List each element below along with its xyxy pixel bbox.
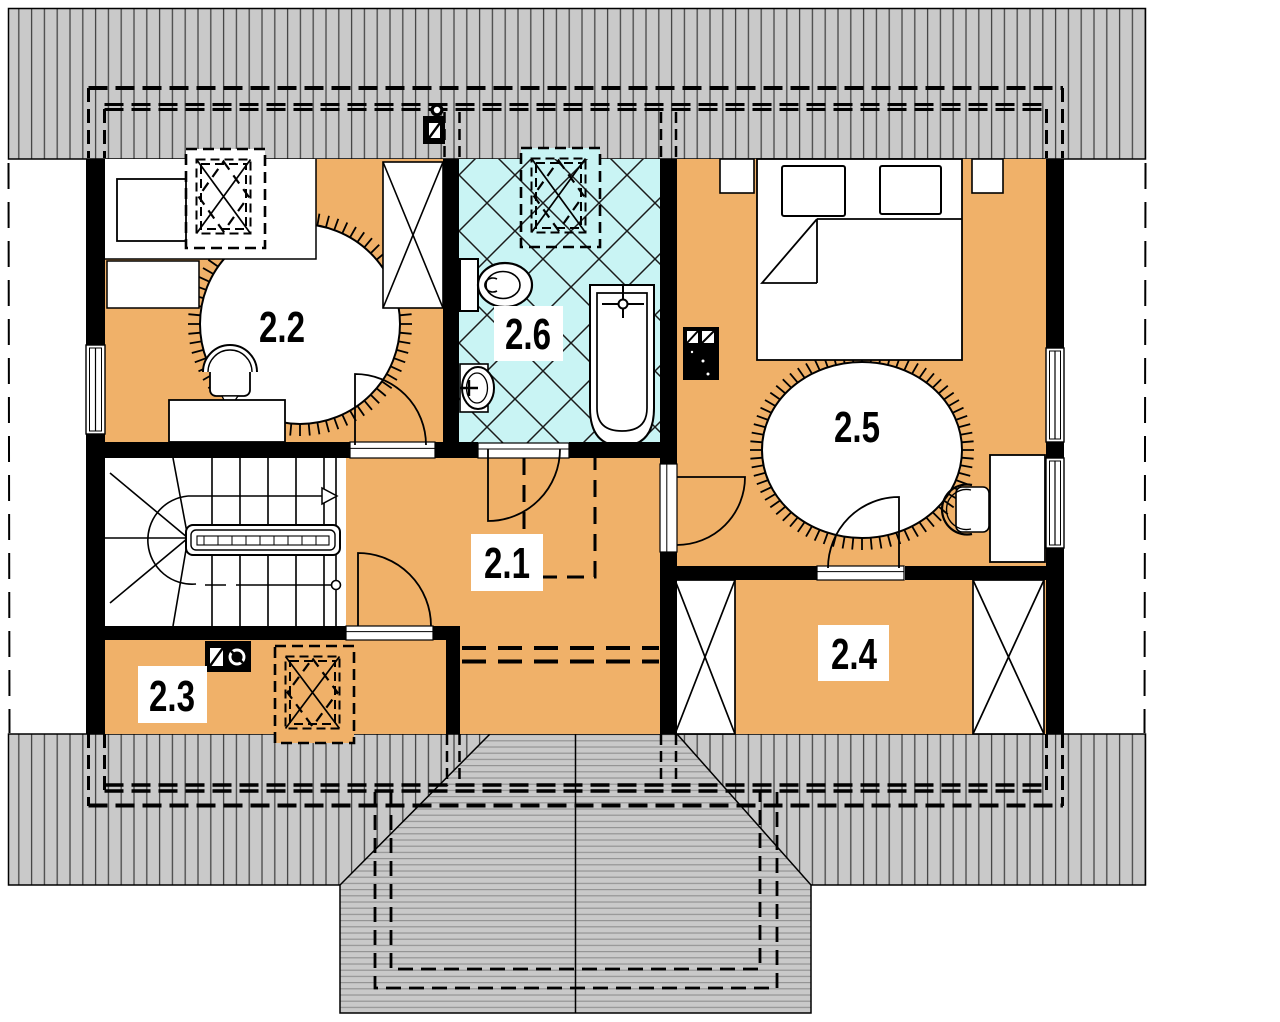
svg-text:2.1: 2.1 <box>484 539 530 588</box>
svg-text:2.4: 2.4 <box>831 630 877 679</box>
svg-text:2.2: 2.2 <box>259 303 305 352</box>
svg-text:2.5: 2.5 <box>834 403 880 452</box>
svg-text:2.3: 2.3 <box>149 672 195 721</box>
svg-text:2.6: 2.6 <box>505 310 551 359</box>
